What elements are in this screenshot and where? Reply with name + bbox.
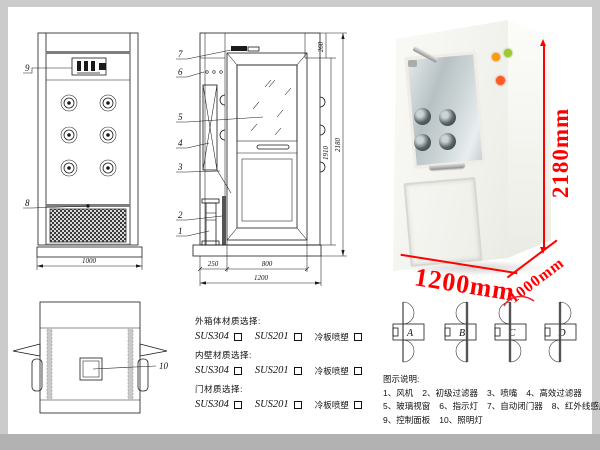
front-base — [37, 247, 142, 257]
shower-arm-head — [408, 60, 417, 67]
side-callouts: 7 6 5 4 3 2 1 — [176, 49, 263, 236]
seal-strip-left — [47, 328, 52, 400]
height-dim-label: 2180mm — [548, 95, 574, 211]
legend-item: 8、红外线感应器 — [552, 400, 600, 414]
legend-row: 9、控制面板 10、照明灯 — [383, 414, 591, 428]
nozzle — [100, 160, 116, 176]
legend-item: 10、照明灯 — [439, 414, 482, 428]
checkbox[interactable] — [294, 401, 302, 409]
door-handle — [257, 145, 289, 149]
fan-column — [202, 199, 219, 245]
indicator-light-red — [496, 76, 505, 85]
legend-item: 9、控制面板 — [383, 414, 430, 428]
svg-text:10: 10 — [159, 361, 169, 371]
callout-5: 5 — [178, 112, 183, 122]
option-label: SUS304 — [195, 331, 229, 342]
dim-250: 250 — [208, 260, 219, 268]
indicator-light-orange — [492, 53, 500, 61]
air-nozzles — [61, 95, 116, 176]
side-base — [193, 245, 321, 256]
svg-text:B: B — [459, 328, 465, 339]
red-pen-mark — [500, 292, 540, 310]
material-group-title: 外箱体材质选择: — [195, 315, 387, 327]
nozzle — [61, 160, 77, 176]
option-label: SUS304 — [195, 399, 229, 410]
top-view-drawing: 10 — [12, 292, 187, 427]
checkbox[interactable] — [234, 401, 242, 409]
handle-right — [138, 359, 148, 391]
legend-item: 1、风机 — [383, 387, 413, 401]
option-label: SUS201 — [255, 331, 289, 342]
svg-text:A: A — [406, 328, 414, 339]
checkbox[interactable] — [294, 367, 302, 375]
checkbox[interactable] — [234, 333, 242, 341]
checkbox[interactable] — [294, 333, 302, 341]
arrow-up — [540, 39, 546, 46]
handle-left — [32, 359, 42, 391]
dim-1200: 1200 — [254, 274, 269, 282]
option-label: 冷板喷塑 — [315, 331, 349, 343]
wall-nozzle-bumps — [220, 95, 325, 172]
height-dimensions: 260 1910 2180 — [317, 33, 347, 256]
width-dimensions: 250 800 1200 — [198, 240, 321, 286]
door-option-D[interactable]: D — [545, 302, 576, 362]
side-hinges — [13, 344, 167, 391]
checkbox[interactable] — [354, 367, 362, 375]
checkbox[interactable] — [354, 333, 362, 341]
nozzle — [100, 95, 116, 111]
callout-3: 3 — [177, 162, 183, 172]
checkbox[interactable] — [234, 367, 242, 375]
legend-item: 6、指示灯 — [439, 400, 478, 414]
legend-item: 3、喷嘴 — [487, 387, 517, 401]
legend-row: 5、玻璃视窗 6、指示灯 7、自动闭门器 8、红外线感应器 — [383, 400, 591, 414]
door-lower-panel — [242, 159, 292, 221]
door-closer — [231, 46, 259, 51]
return-air-grille — [46, 204, 130, 244]
door — [227, 46, 307, 240]
legend: 图示说明: 1、风机 2、初级过滤器 3、喷嘴 4、高效过滤器 5、玻璃视窗 6… — [383, 373, 591, 427]
legend-item: 4、高效过滤器 — [526, 387, 582, 401]
nozzle — [414, 108, 431, 125]
door-lower-panel — [403, 177, 482, 267]
height-dim-line — [543, 45, 545, 248]
front-view-drawing: 1000 9 8 — [20, 22, 170, 272]
material-selection: 外箱体材质选择: SUS304 SUS201 冷板喷塑 内壁材质选择: SUS3… — [195, 315, 387, 417]
door-option-C[interactable]: C — [495, 302, 526, 362]
nozzle — [61, 127, 77, 143]
door-glass — [237, 65, 297, 141]
legend-item: 2、初级过滤器 — [422, 387, 478, 401]
indicator-lights-dots — [206, 71, 223, 74]
product-photo: 2180mm 1200mm 1000mm — [383, 8, 578, 303]
control-panel — [72, 58, 106, 75]
option-label: SUS201 — [255, 365, 289, 376]
svg-text:D: D — [557, 328, 566, 339]
option-label: SUS304 — [195, 365, 229, 376]
spec-sheet-page: 1000 9 8 — [0, 0, 600, 450]
nozzle — [414, 134, 431, 151]
option-label: SUS201 — [255, 399, 289, 410]
door-option-A[interactable]: A — [393, 302, 424, 362]
legend-item: 5、玻璃视窗 — [383, 400, 430, 414]
nozzle — [439, 133, 456, 150]
callout-1: 1 — [178, 226, 183, 236]
material-group-title: 内壁材质选择: — [195, 349, 387, 361]
door-option-B[interactable]: B — [445, 302, 476, 362]
nozzle — [61, 95, 77, 111]
material-group-title: 门材质选择: — [195, 383, 387, 395]
nozzle — [100, 127, 116, 143]
door-swing-options: A B C D — [386, 298, 582, 370]
callout-2: 2 — [178, 210, 183, 220]
checkbox[interactable] — [354, 401, 362, 409]
material-options-row: SUS304 SUS201 冷板喷塑 — [195, 364, 387, 377]
indicator-light-green — [504, 49, 512, 57]
nozzle — [439, 109, 456, 126]
front-width-dimension: 1000 — [37, 257, 142, 270]
duct-strip — [222, 196, 226, 245]
front-width-label: 1000 — [82, 257, 97, 265]
legend-title: 图示说明: — [383, 373, 591, 387]
legend-row: 1、风机 2、初级过滤器 3、喷嘴 4、高效过滤器 — [383, 387, 591, 401]
callout-6: 6 — [178, 67, 183, 77]
svg-text:9: 9 — [25, 63, 30, 73]
dim-2180: 2180 — [334, 138, 342, 153]
callout-7: 7 — [178, 49, 183, 59]
dim-1910: 1910 — [322, 146, 330, 161]
legend-item: 7、自动闭门器 — [487, 400, 543, 414]
callout-4: 4 — [178, 138, 183, 148]
side-view-drawing: 7 6 5 4 3 2 1 260 1910 2180 — [173, 13, 358, 308]
bottom-frame-bar — [0, 434, 600, 450]
material-options-row: SUS304 SUS201 冷板喷塑 — [195, 398, 387, 411]
option-label: 冷板喷塑 — [315, 399, 349, 411]
svg-text:8: 8 — [25, 198, 30, 208]
material-options-row: SUS304 SUS201 冷板喷塑 — [195, 330, 387, 343]
dim-260: 260 — [317, 41, 325, 52]
seal-strip-right — [128, 328, 133, 400]
option-label: 冷板喷塑 — [315, 365, 349, 377]
callout-9: 9 — [23, 63, 72, 73]
dim-800: 800 — [262, 260, 273, 268]
